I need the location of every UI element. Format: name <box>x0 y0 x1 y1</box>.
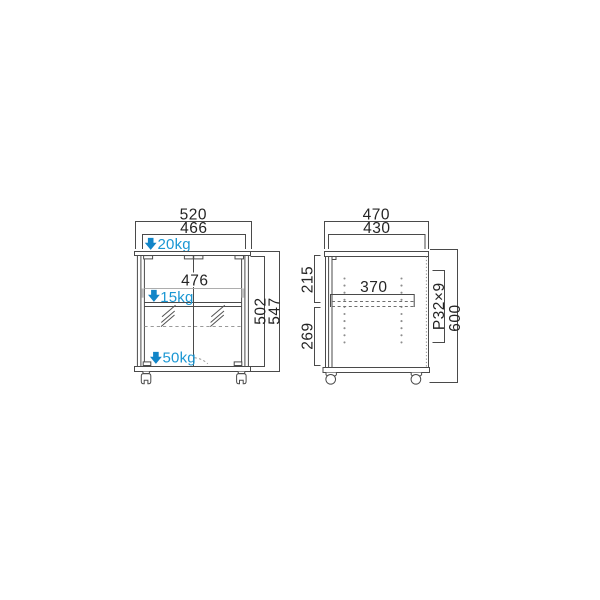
svg-text:269: 269 <box>299 322 316 349</box>
svg-text:547: 547 <box>267 297 284 324</box>
svg-text:215: 215 <box>299 266 316 293</box>
svg-text:50kg: 50kg <box>163 350 196 367</box>
svg-text:15kg: 15kg <box>160 289 193 306</box>
svg-text:466: 466 <box>180 220 207 237</box>
svg-text:600: 600 <box>447 304 464 331</box>
svg-text:20kg: 20kg <box>158 236 191 253</box>
svg-text:370: 370 <box>360 279 387 296</box>
svg-text:430: 430 <box>363 220 390 237</box>
svg-text:P32×9: P32×9 <box>431 282 448 330</box>
svg-text:476: 476 <box>181 273 208 290</box>
